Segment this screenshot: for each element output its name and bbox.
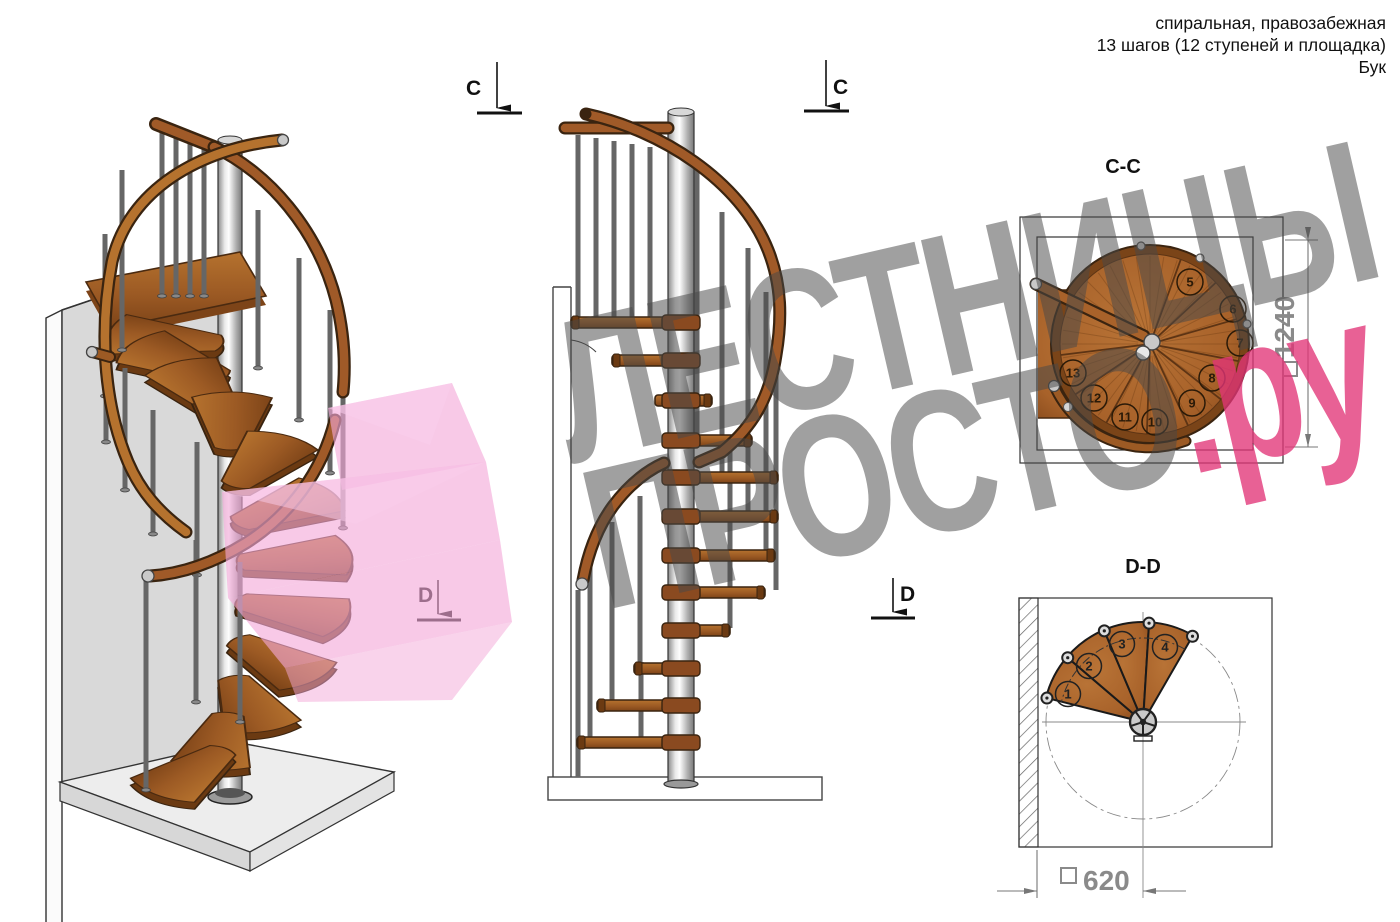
dimension-620: 620 bbox=[997, 850, 1186, 898]
step-collar bbox=[662, 548, 700, 563]
step-number: 5 bbox=[1186, 275, 1193, 290]
step-number: 6 bbox=[1229, 302, 1236, 317]
marker-letter: C bbox=[833, 76, 848, 99]
step-collar bbox=[662, 661, 700, 676]
step-number: 11 bbox=[1118, 410, 1132, 425]
step-collar bbox=[662, 509, 700, 524]
step-number: 8 bbox=[1208, 371, 1215, 386]
section-view-cc: C-C bbox=[1020, 156, 1318, 463]
step-number: 1 bbox=[1064, 687, 1071, 702]
marker-letter: D bbox=[900, 583, 915, 606]
step-number: 4 bbox=[1161, 640, 1169, 655]
title-block: спиральная, правозабежная 13 шагов (12 с… bbox=[1097, 12, 1386, 78]
step-collar bbox=[662, 393, 700, 408]
step-number: 2 bbox=[1085, 659, 1092, 674]
pole-plan bbox=[1130, 709, 1156, 741]
wall-hatch bbox=[1019, 598, 1038, 847]
dim-value-1240: 1240 bbox=[1269, 296, 1300, 358]
step-number: 9 bbox=[1188, 396, 1195, 411]
section-marker-c-right: C bbox=[804, 60, 849, 111]
step-number: 3 bbox=[1118, 637, 1125, 652]
material: Бук bbox=[1097, 56, 1386, 78]
step-collar bbox=[662, 433, 700, 448]
section-marker-d-right: D bbox=[871, 578, 915, 618]
section-view-dd: D-D 1234 620 bbox=[997, 556, 1272, 898]
section-label-dd: D-D bbox=[1125, 556, 1161, 578]
step-collar bbox=[662, 585, 700, 600]
step-collar bbox=[662, 315, 700, 330]
step-collar bbox=[662, 353, 700, 368]
stair-type: спиральная, правозабежная bbox=[1097, 12, 1386, 34]
step-number: 12 bbox=[1087, 391, 1101, 406]
step-number: 13 bbox=[1066, 366, 1080, 381]
step-collar bbox=[662, 623, 700, 638]
step-number: 10 bbox=[1148, 415, 1162, 430]
step-collar bbox=[662, 735, 700, 750]
drawing-page: C C D D C-C bbox=[0, 0, 1400, 922]
dim-value-620: 620 bbox=[1083, 865, 1130, 896]
step-collar bbox=[662, 470, 700, 485]
square-symbol bbox=[1283, 362, 1297, 376]
step-count: 13 шагов (12 ступеней и площадка) bbox=[1097, 34, 1386, 56]
step-collar bbox=[662, 698, 700, 713]
section-marker-c-left: C bbox=[466, 62, 522, 113]
square-symbol bbox=[1061, 868, 1076, 883]
marker-letter: C bbox=[466, 77, 481, 100]
center-front-view bbox=[548, 108, 822, 800]
section-label-cc: C-C bbox=[1105, 156, 1141, 178]
step-number: 7 bbox=[1236, 336, 1243, 351]
drawing-canvas: C C D D C-C bbox=[0, 0, 1400, 922]
